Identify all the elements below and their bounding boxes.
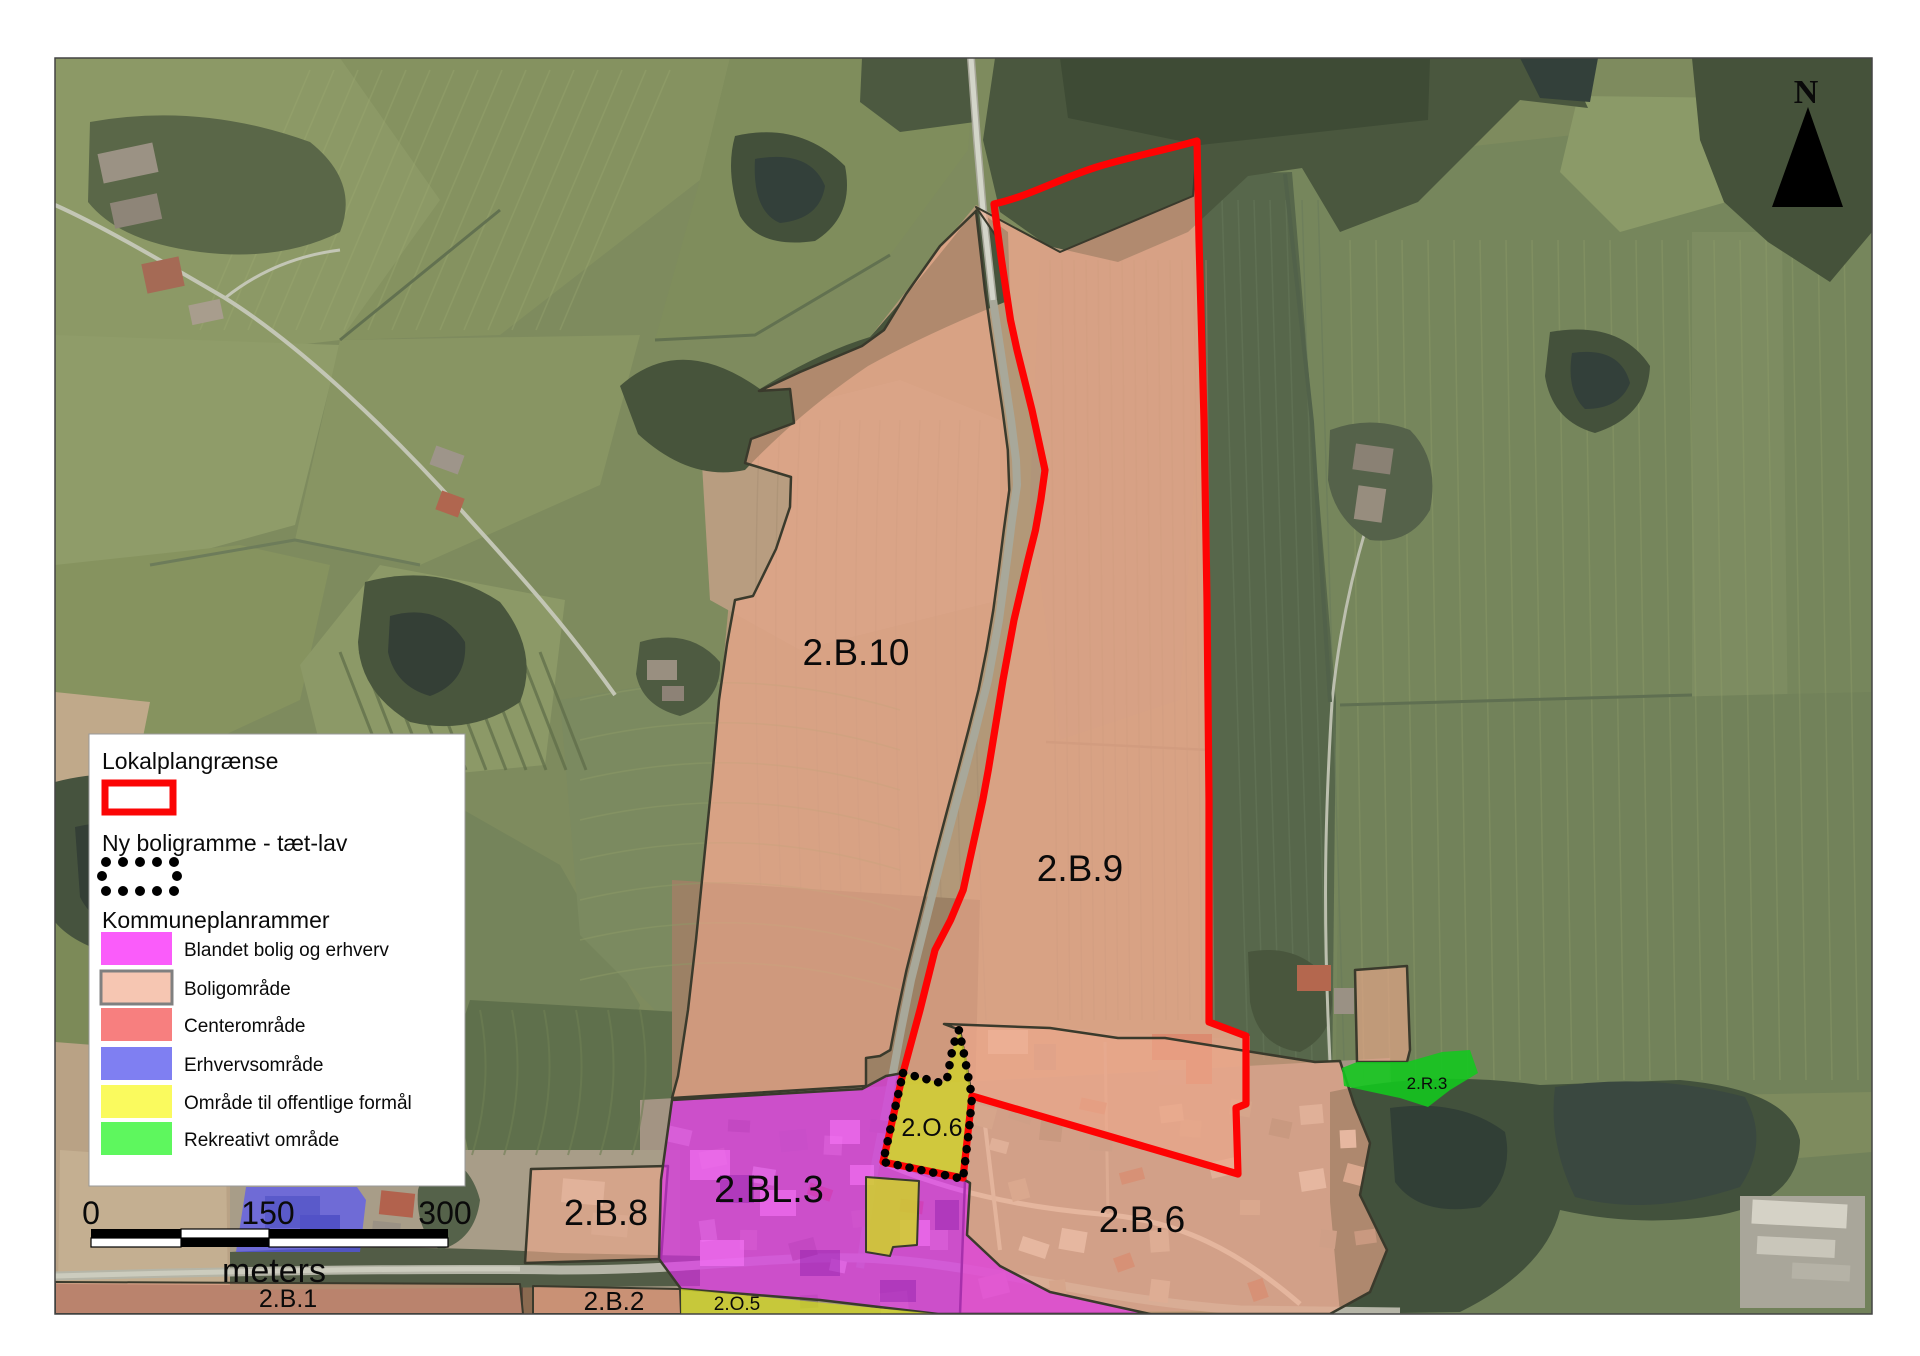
svg-text:Erhvervsområde: Erhvervsområde: [184, 1055, 323, 1076]
svg-text:meters: meters: [222, 1252, 326, 1290]
svg-text:300: 300: [418, 1195, 471, 1231]
svg-text:2.B.2: 2.B.2: [584, 1286, 645, 1316]
svg-text:Blandet bolig og erhverv: Blandet bolig og erhverv: [184, 940, 389, 961]
svg-text:Område til offentlige formål: Område til offentlige formål: [184, 1093, 412, 1114]
svg-text:150: 150: [241, 1195, 294, 1231]
svg-text:2.O.5: 2.O.5: [714, 1294, 760, 1315]
svg-text:Centerområde: Centerområde: [184, 1016, 305, 1037]
svg-text:0: 0: [82, 1195, 100, 1231]
svg-text:Kommuneplanrammer: Kommuneplanrammer: [102, 907, 330, 933]
svg-text:Boligområde: Boligområde: [184, 979, 291, 1000]
svg-text:2.BL.3: 2.BL.3: [714, 1169, 824, 1211]
svg-text:Ny boligramme - tæt-lav: Ny boligramme - tæt-lav: [102, 830, 348, 856]
svg-text:Lokalplangrænse: Lokalplangrænse: [102, 748, 278, 774]
svg-text:2.B.6: 2.B.6: [1099, 1199, 1185, 1240]
svg-text:2.O.6: 2.O.6: [901, 1114, 962, 1142]
svg-text:2.R.3: 2.R.3: [1407, 1074, 1448, 1093]
svg-text:2.B.8: 2.B.8: [564, 1192, 648, 1233]
svg-text:Rekreativt område: Rekreativt område: [184, 1130, 339, 1151]
svg-text:2.B.9: 2.B.9: [1037, 848, 1123, 889]
svg-text:N: N: [1794, 74, 1819, 111]
svg-text:2.B.10: 2.B.10: [803, 632, 910, 673]
